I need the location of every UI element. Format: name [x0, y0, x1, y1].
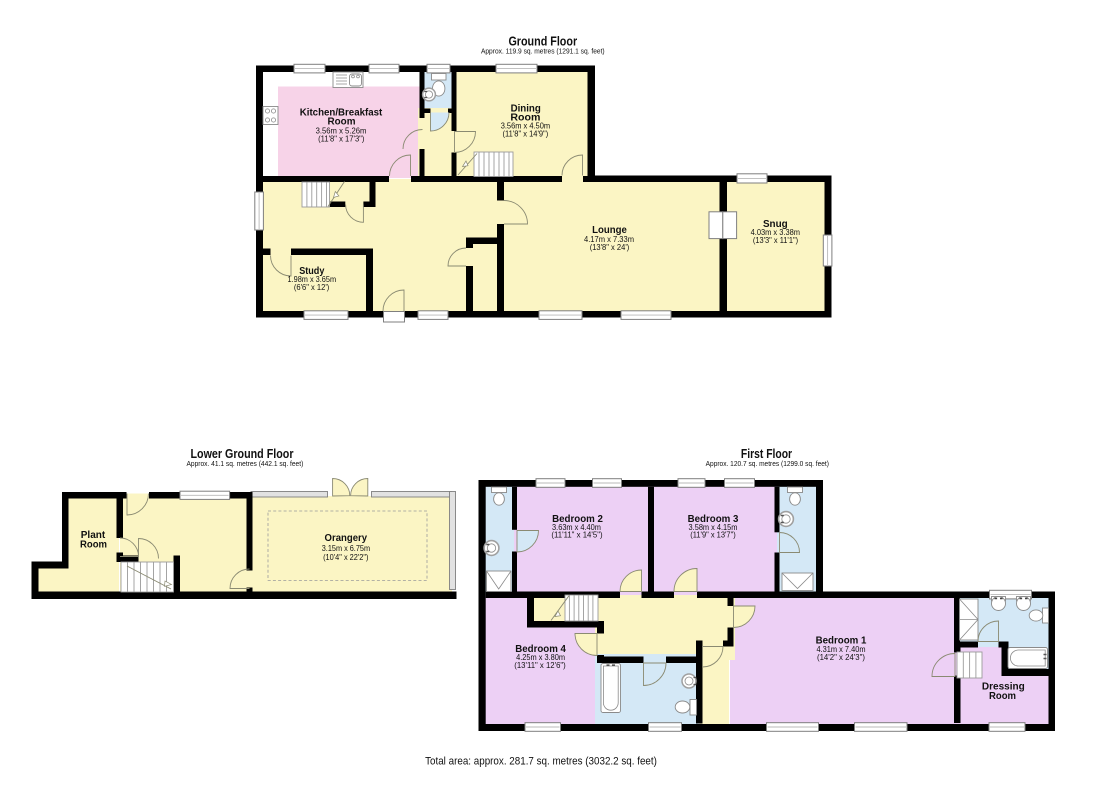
svg-text:(11'9" x 13'7"): (11'9" x 13'7"): [690, 531, 736, 540]
svg-text:3.15m x 6.75m: 3.15m x 6.75m: [322, 544, 370, 553]
svg-text:(13'3" x 11'1"): (13'3" x 11'1"): [753, 236, 799, 245]
svg-text:Approx. 120.7 sq. metres (1299: Approx. 120.7 sq. metres (1299.0 sq. fee…: [706, 459, 829, 468]
svg-text:Orangery: Orangery: [325, 533, 368, 544]
svg-text:(14'2" x 24'3"): (14'2" x 24'3"): [817, 653, 865, 662]
svg-text:(13'8" x 24'): (13'8" x 24'): [590, 243, 630, 252]
svg-text:(6'6" x 12'): (6'6" x 12'): [294, 283, 330, 292]
svg-text:Approx. 41.1 sq. metres (442.1: Approx. 41.1 sq. metres (442.1 sq. feet): [187, 459, 304, 468]
svg-text:(10'4" x 22'2"): (10'4" x 22'2"): [323, 553, 369, 562]
svg-text:Room: Room: [80, 540, 107, 551]
svg-text:(11'8" x 14'9"): (11'8" x 14'9"): [503, 129, 549, 138]
svg-text:Total area: approx. 281.7 sq.: Total area: approx. 281.7 sq. metres (30…: [425, 755, 657, 767]
svg-text:(11'11" x 14'5"): (11'11" x 14'5"): [551, 531, 603, 540]
svg-text:Room: Room: [989, 691, 1016, 702]
svg-text:(13'11" x 12'6"): (13'11" x 12'6"): [514, 661, 566, 670]
svg-text:Approx. 119.9 sq. metres (1291: Approx. 119.9 sq. metres (1291.1 sq. fee…: [481, 47, 605, 56]
svg-text:(11'8" x 17'3"): (11'8" x 17'3"): [318, 135, 365, 144]
